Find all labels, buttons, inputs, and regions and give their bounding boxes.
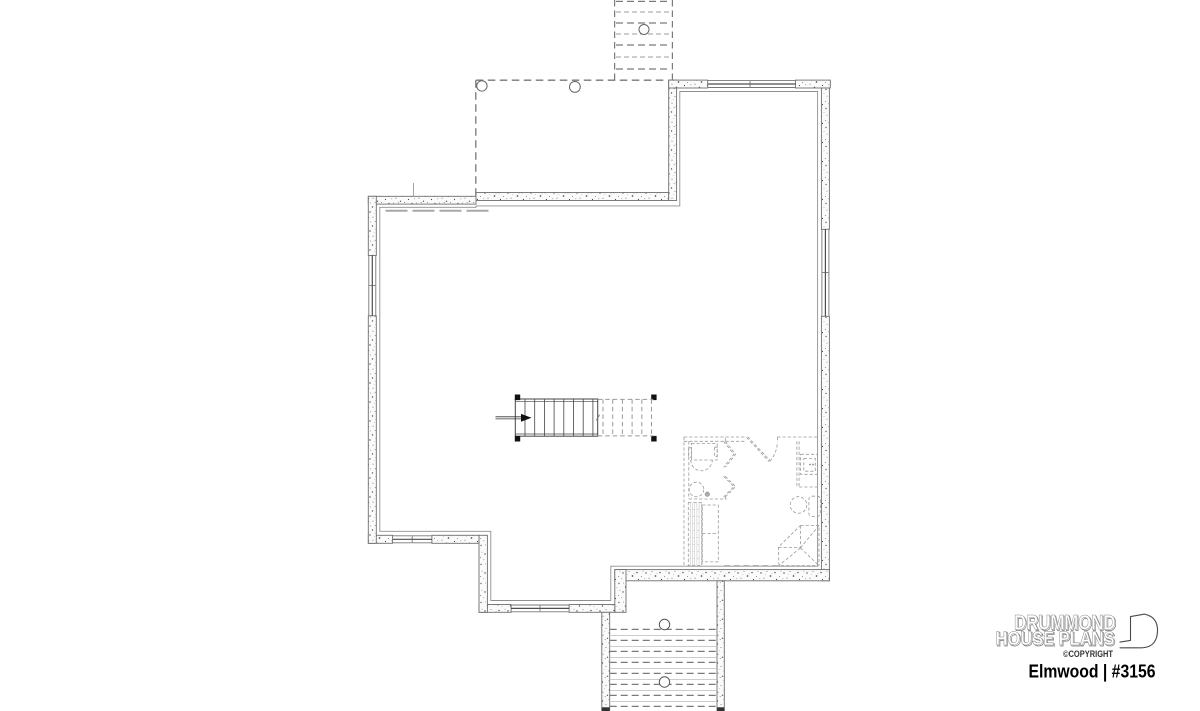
svg-text:HOUSE PLANS: HOUSE PLANS	[996, 629, 1115, 650]
svg-text:©COPYRIGHT: ©COPYRIGHT	[1063, 649, 1113, 659]
svg-text:Elmwood | #3156: Elmwood | #3156	[1029, 660, 1156, 681]
